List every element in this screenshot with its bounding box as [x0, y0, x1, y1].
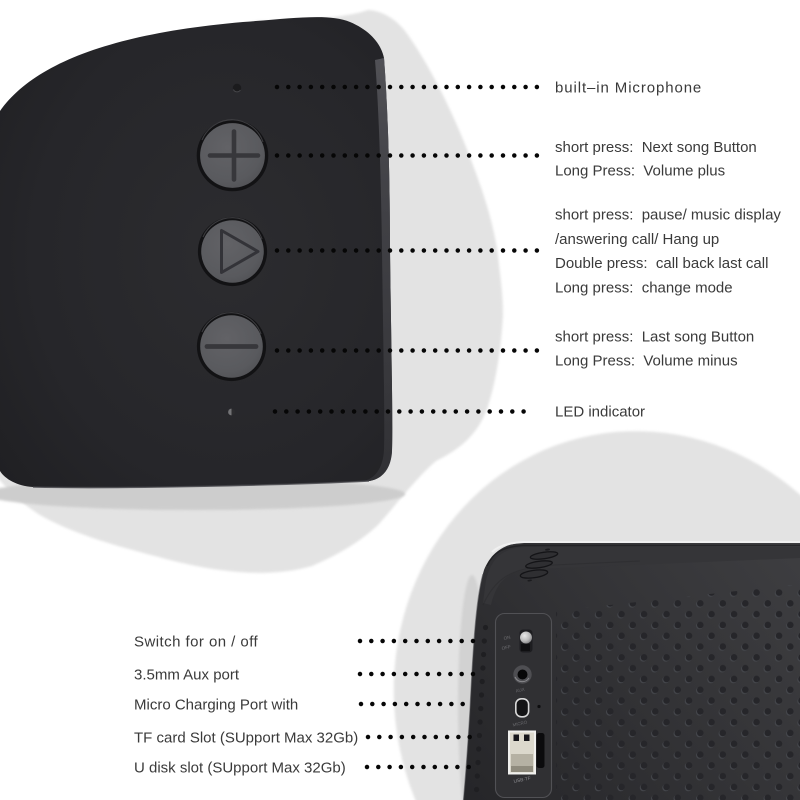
svg-text:Double press: call back last: Double press: call back last call: [555, 255, 768, 272]
svg-text:U disk slot (SUpport Max 32Gb): U disk slot (SUpport Max 32Gb): [134, 759, 346, 776]
svg-text:short press: Last song Button: short press: Last song Button: [555, 328, 754, 345]
svg-text:Micro Charging Port with: Micro Charging Port with: [134, 696, 298, 713]
svg-text:TF card Slot (SUpport Max 32Gb: TF card Slot (SUpport Max 32Gb): [134, 729, 358, 746]
svg-text:short press: Next song Button: short press: Next song Button: [555, 139, 757, 156]
svg-text:Switch for on / off: Switch for on / off: [134, 633, 259, 650]
svg-text:Long Press: Volume plus: Long Press: Volume plus: [555, 163, 725, 180]
svg-text:built–in Microphone: built–in Microphone: [555, 80, 702, 97]
svg-text:3.5mm Aux port: 3.5mm Aux port: [134, 666, 240, 683]
svg-text:/answering call/ Hang up: /answering call/ Hang up: [555, 231, 719, 248]
svg-text:short press: pause/ music dis: short press: pause/ music display: [555, 206, 781, 223]
svg-text:Long Press: Volume minus: Long Press: Volume minus: [555, 353, 738, 370]
svg-text:LED indicator: LED indicator: [555, 404, 645, 421]
svg-text:Long press: change mode: Long press: change mode: [555, 280, 733, 297]
